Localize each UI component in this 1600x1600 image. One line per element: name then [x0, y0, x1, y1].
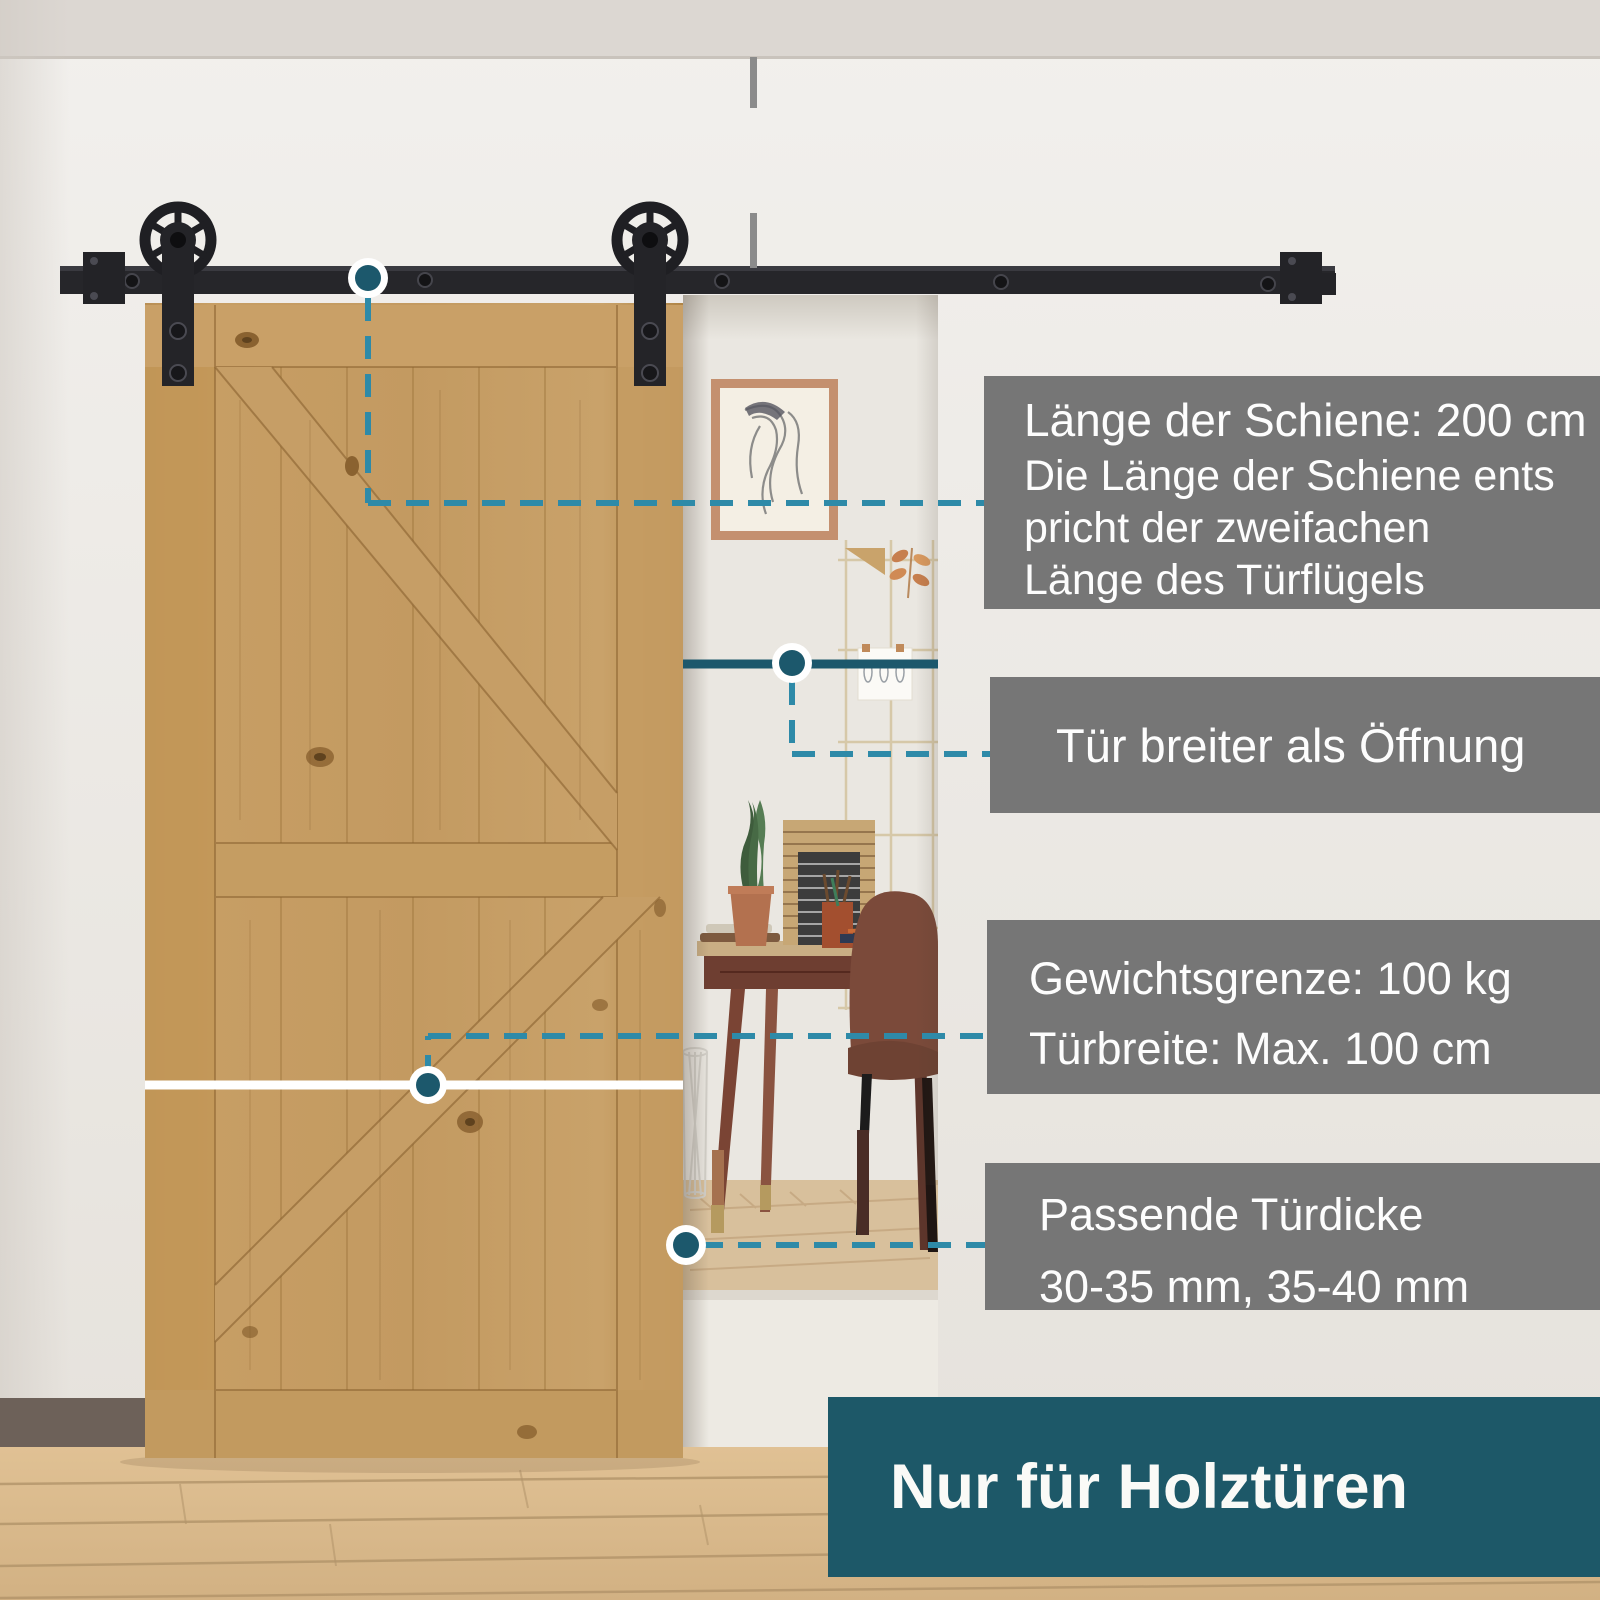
marker-dot-rail: [348, 258, 388, 298]
opening-top-shadow: [683, 295, 938, 340]
framed-picture: [711, 379, 838, 540]
callout-rail-length-line2: pricht der zweifachen: [1024, 502, 1590, 554]
marker-dot-opening: [772, 643, 812, 683]
callout-rail-length-line1: Die Länge der Schiene ents: [1024, 450, 1590, 502]
callout-door-wider: Tür breiter als Öffnung: [990, 677, 1600, 813]
marker-dot-thickness: [666, 1225, 706, 1265]
ceiling-band: [0, 0, 1600, 56]
callout-door-thickness: Passende Türdicke 30-35 mm, 35-40 mm: [985, 1163, 1600, 1310]
door-cast-shadow: [683, 295, 709, 1447]
marker-dot-door-width: [409, 1066, 447, 1104]
opening-right-shadow: [916, 295, 938, 1185]
footer-banner: Nur für Holztüren: [828, 1397, 1600, 1577]
callout-weight-line1: Gewichtsgrenze: 100 kg: [1029, 944, 1590, 1014]
callout-weight-limit: Gewichtsgrenze: 100 kg Türbreite: Max. 1…: [987, 920, 1600, 1094]
callout-thickness-line2: 30-35 mm, 35-40 mm: [1039, 1251, 1590, 1323]
callout-thickness-line1: Passende Türdicke: [1039, 1179, 1590, 1251]
wall-corner-shadow: [0, 0, 70, 1600]
product-infographic: Länge der Schiene: 200 cm Die Länge der …: [0, 0, 1600, 1600]
callout-door-wider-label: Tür breiter als Öffnung: [1056, 718, 1525, 773]
left-end-stop: [83, 252, 125, 304]
callout-rail-length: Länge der Schiene: 200 cm Die Länge der …: [984, 376, 1600, 609]
doorway-opening: [683, 295, 938, 1447]
callout-weight-line2: Türbreite: Max. 100 cm: [1029, 1014, 1590, 1084]
callout-rail-length-title: Länge der Schiene: 200 cm: [1024, 392, 1590, 450]
wall-mark-segment-bottom: [750, 213, 757, 268]
callout-rail-length-line3: Länge des Türflügels: [1024, 554, 1590, 606]
wall-mark-segment-top: [750, 57, 757, 108]
barn-door: [145, 303, 683, 1458]
footer-banner-label: Nur für Holztüren: [890, 1451, 1408, 1523]
leaf-print-card: [858, 644, 912, 700]
